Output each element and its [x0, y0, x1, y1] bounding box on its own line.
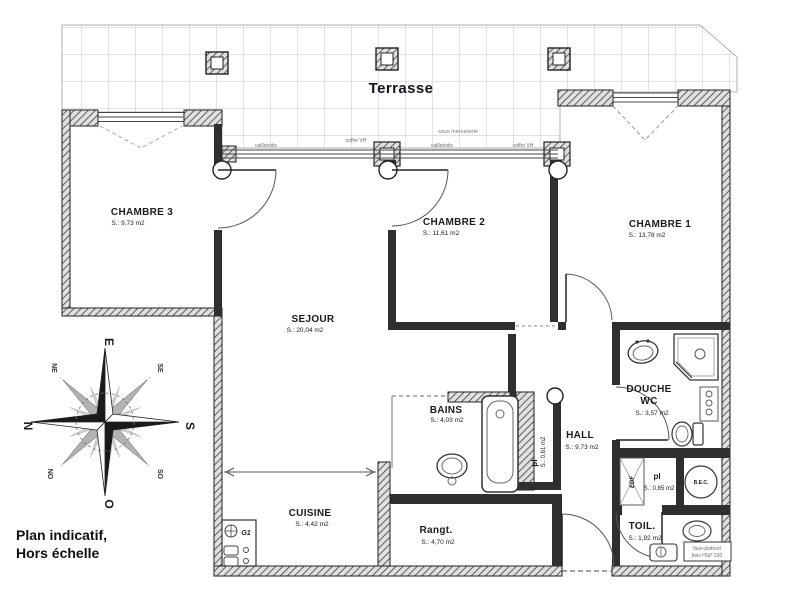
- faux-plafond-line2: bois HSP 230: [692, 553, 723, 559]
- svg-text:S.: 9,73 m2: S.: 9,73 m2: [565, 444, 599, 451]
- wall-segment: [388, 322, 515, 330]
- wall-segment: [612, 505, 622, 515]
- terrace-pillar: [206, 52, 228, 74]
- annotation-coffre-vh: coffre VH: [346, 138, 367, 144]
- annotation-coffre-vh: coffre VH: [513, 143, 534, 149]
- kitchen-block: G1: [222, 520, 256, 566]
- wall-left-exterior: [214, 316, 222, 574]
- svg-text:TOIL.: TOIL.: [629, 521, 656, 532]
- bathtub: [482, 396, 518, 492]
- wall-segment: [550, 160, 558, 322]
- svg-text:WC: WC: [640, 396, 657, 407]
- faux-plafond-box: faux-plafond bois HSP 230: [684, 542, 731, 561]
- wall-segment: [612, 322, 730, 330]
- svg-text:S.: 4,42 m2: S.: 4,42 m2: [295, 521, 329, 528]
- wall-segment: [612, 330, 620, 385]
- wall-segment: [184, 110, 222, 126]
- wall-segment: [612, 440, 620, 566]
- terrace-pillar: [548, 48, 570, 70]
- svg-text:DOUCHE: DOUCHE: [626, 384, 671, 395]
- svg-text:CHAMBRE 1: CHAMBRE 1: [629, 219, 691, 230]
- wall-segment: [516, 482, 561, 490]
- svg-text:S.: 0,85 m2: S.: 0,85 m2: [644, 486, 675, 492]
- annotation-caillebotis: caillebotis: [255, 143, 277, 149]
- compass-label-se: SE: [156, 363, 163, 373]
- wall-segment: [558, 322, 566, 330]
- round-column: [549, 161, 567, 179]
- wall-segment: [214, 230, 222, 316]
- svg-text:HALL: HALL: [566, 430, 594, 441]
- wall-bottom-exterior: [214, 566, 562, 576]
- compass-label-so: SO: [156, 469, 163, 480]
- edf-closet: EDF: [620, 458, 644, 505]
- wall-right-exterior: [722, 92, 730, 576]
- plan-note-line2: Hors échelle: [16, 545, 99, 561]
- technical-duct: [700, 387, 718, 421]
- svg-text:pl: pl: [653, 472, 660, 481]
- wall-segment: [678, 90, 730, 106]
- wall-left-exterior: [62, 110, 70, 316]
- annotation-caillebotis: caillebotis: [431, 143, 453, 149]
- edf-label: EDF: [630, 476, 636, 488]
- wall-segment: [662, 505, 730, 515]
- room-label-cuisine: CUISINE S.: 4,42 m2: [289, 508, 332, 528]
- svg-text:Rangt.: Rangt.: [420, 525, 453, 536]
- compass-label-o: O: [102, 499, 116, 508]
- terrace-pillar: [376, 48, 398, 70]
- pillar-core: [553, 53, 565, 65]
- wall-segment: [388, 230, 396, 330]
- svg-text:S.: 13,78 m2: S.: 13,78 m2: [629, 232, 666, 239]
- toil-basin: [650, 544, 677, 561]
- floor-plan: Terrasse: [0, 0, 800, 600]
- svg-text:S.: 3,57 m2: S.: 3,57 m2: [635, 410, 669, 417]
- svg-text:S.: 4,70 m2: S.: 4,70 m2: [421, 539, 455, 546]
- svg-text:CUISINE: CUISINE: [289, 508, 332, 519]
- pillar-core: [211, 57, 223, 69]
- water-heater: B.E.C.: [685, 466, 717, 498]
- faux-plafond-line1: faux-plafond: [693, 546, 721, 552]
- wall-segment: [62, 308, 222, 316]
- compass-label-n: N: [21, 422, 35, 431]
- wall-segment: [552, 504, 562, 566]
- svg-text:S.: 4,03 m2: S.: 4,03 m2: [430, 417, 464, 424]
- svg-text:S.: 11,61 m2: S.: 11,61 m2: [423, 230, 460, 237]
- svg-text:BAINS: BAINS: [430, 405, 463, 416]
- svg-text:SEJOUR: SEJOUR: [292, 314, 335, 325]
- compass-label-s: S: [183, 422, 197, 430]
- wall-segment: [388, 494, 562, 504]
- wall-bottom-exterior: [612, 566, 730, 576]
- toil-toilet: [683, 521, 711, 541]
- svg-text:CHAMBRE 2: CHAMBRE 2: [423, 217, 485, 228]
- compass-label-no: NO: [46, 469, 53, 480]
- svg-text:CHAMBRE 3: CHAMBRE 3: [111, 207, 173, 218]
- wall-segment: [508, 334, 516, 398]
- compass-label-ne: NE: [50, 363, 57, 373]
- g1-label: G1: [241, 530, 250, 537]
- terrace-label: Terrasse: [369, 80, 434, 97]
- svg-text:S.: 0,61 m2: S.: 0,61 m2: [541, 436, 547, 467]
- plan-note-line1: Plan indicatif,: [16, 527, 107, 543]
- room-label-rangt: Rangt. S.: 4,70 m2: [420, 525, 455, 546]
- svg-text:S.: 20,04 m2: S.: 20,04 m2: [287, 327, 324, 334]
- wall-segment: [558, 90, 613, 106]
- room-label-bains: BAINS S.: 4,03 m2: [430, 405, 464, 424]
- svg-text:S.: 1,92 m2: S.: 1,92 m2: [628, 535, 662, 542]
- round-column: [547, 388, 563, 404]
- annotation-sous-menuiserie: sous menuiserie: [438, 129, 478, 135]
- svg-text:S.: 9,73 m2: S.: 9,73 m2: [111, 220, 145, 227]
- bec-label: B.E.C.: [694, 480, 709, 486]
- wall-segment: [378, 462, 390, 566]
- compass-label-e: E: [102, 338, 116, 346]
- pillar-core: [381, 53, 393, 65]
- wall-segment: [620, 448, 730, 458]
- douche-toilet: [672, 422, 703, 446]
- wall-segment: [553, 392, 561, 490]
- svg-text:pl: pl: [530, 459, 539, 466]
- wall-segment: [676, 458, 684, 505]
